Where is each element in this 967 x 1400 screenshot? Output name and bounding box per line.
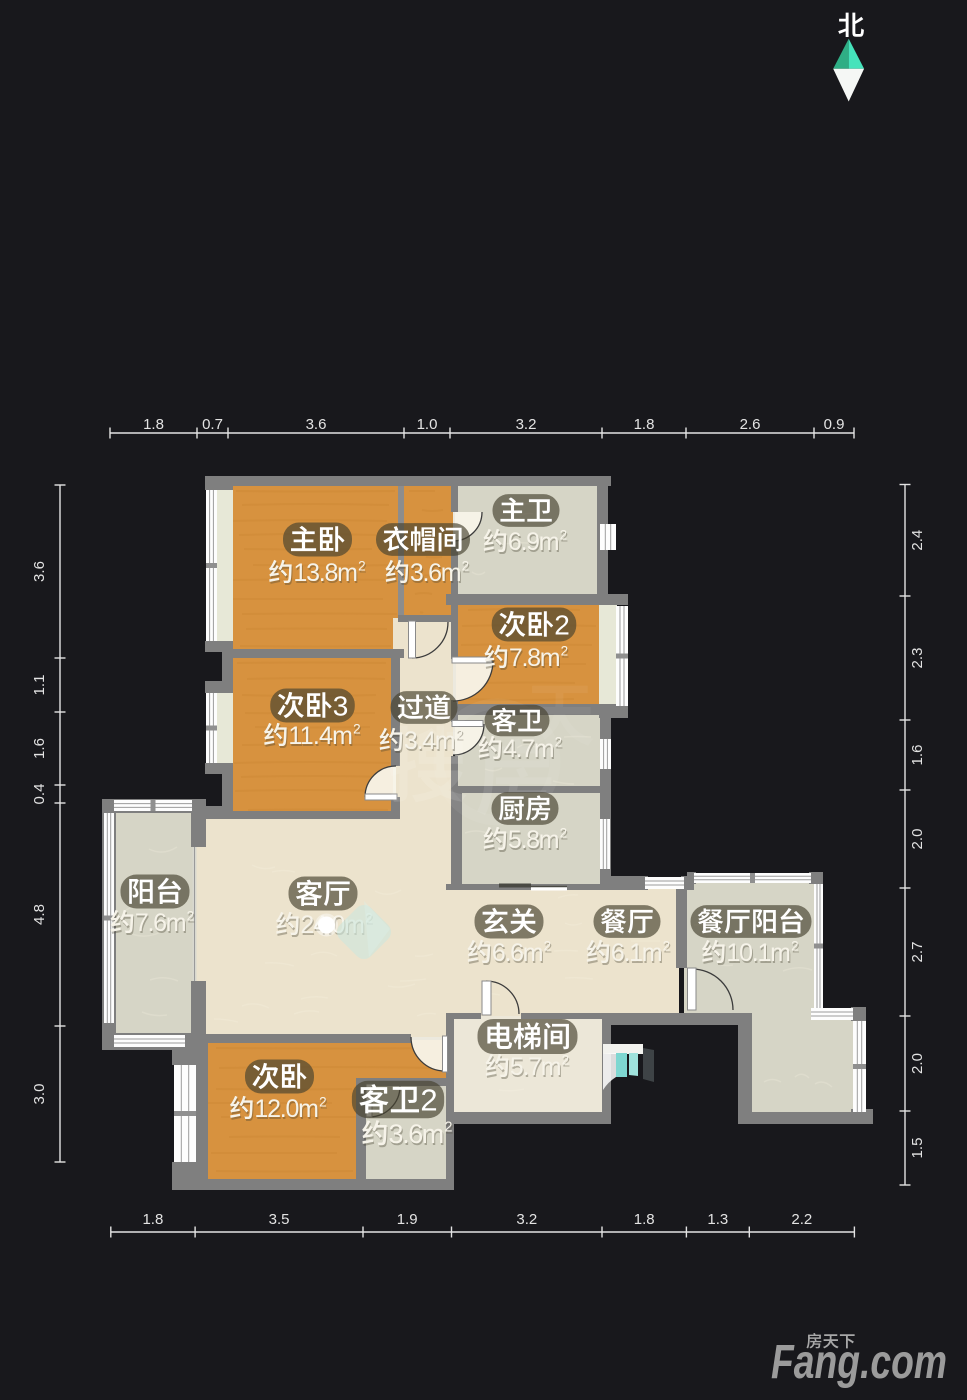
svg-text:4.7m: 4.7m: [503, 735, 555, 763]
svg-text:3: 3: [333, 691, 349, 722]
svg-text:2: 2: [562, 1053, 570, 1068]
svg-text:2.6: 2.6: [740, 416, 761, 433]
svg-text:6.1m: 6.1m: [611, 939, 663, 967]
svg-text:4.8: 4.8: [31, 904, 48, 925]
svg-text:2: 2: [560, 528, 568, 543]
svg-text:2: 2: [444, 1120, 452, 1136]
svg-text:3.0: 3.0: [31, 1084, 48, 1105]
svg-text:1.8: 1.8: [634, 1211, 655, 1228]
svg-text:2: 2: [456, 727, 464, 742]
svg-text:1.8: 1.8: [143, 416, 164, 433]
svg-text:3.6m: 3.6m: [410, 559, 462, 587]
svg-text:2: 2: [319, 1095, 327, 1110]
svg-text:2.7: 2.7: [909, 942, 926, 963]
svg-text:Fang.com: Fang.com: [771, 1336, 947, 1389]
svg-text:2.0: 2.0: [909, 1053, 926, 1074]
svg-text:3.2: 3.2: [516, 1211, 537, 1228]
svg-text:2: 2: [555, 735, 563, 750]
svg-text:3.6m: 3.6m: [389, 1119, 445, 1149]
svg-text:2: 2: [663, 939, 671, 954]
svg-text:2: 2: [561, 644, 569, 659]
svg-text:2.0: 2.0: [909, 829, 926, 850]
svg-text:1.3: 1.3: [707, 1211, 728, 1228]
svg-text:0.4: 0.4: [31, 784, 48, 805]
svg-text:0.9: 0.9: [824, 416, 845, 433]
svg-text:7.8m: 7.8m: [509, 644, 561, 672]
svg-text:1.6: 1.6: [909, 745, 926, 766]
svg-text:2.4: 2.4: [909, 530, 926, 551]
svg-text:2: 2: [462, 559, 470, 574]
svg-text:6.9m: 6.9m: [508, 528, 560, 556]
svg-text:3.6: 3.6: [306, 416, 327, 433]
svg-text:2: 2: [353, 722, 361, 737]
svg-text:0.7: 0.7: [202, 416, 223, 433]
svg-text:2.3: 2.3: [909, 648, 926, 669]
svg-text:1.8: 1.8: [142, 1211, 163, 1228]
svg-text:2: 2: [187, 909, 195, 924]
svg-text:13.8m: 13.8m: [293, 559, 358, 587]
svg-text:7.6m: 7.6m: [135, 909, 187, 937]
svg-text:5.7m: 5.7m: [510, 1053, 562, 1081]
svg-text:3.6: 3.6: [31, 561, 48, 582]
svg-text:1.8: 1.8: [634, 416, 655, 433]
svg-text:11.4m: 11.4m: [288, 722, 353, 750]
svg-text:2: 2: [791, 939, 799, 954]
svg-text:3.5: 3.5: [269, 1211, 290, 1228]
svg-text:2: 2: [544, 939, 552, 954]
svg-text:2: 2: [358, 559, 366, 574]
svg-text:2.2: 2.2: [791, 1211, 812, 1228]
svg-text:1.1: 1.1: [31, 675, 48, 696]
svg-text:10.1m: 10.1m: [726, 939, 791, 967]
svg-text:12.0m: 12.0m: [254, 1095, 319, 1123]
svg-text:5.8m: 5.8m: [508, 826, 560, 854]
svg-text:2: 2: [560, 826, 568, 841]
svg-text:2: 2: [554, 610, 570, 641]
svg-text:1.6: 1.6: [31, 738, 48, 759]
svg-text:1.5: 1.5: [909, 1138, 926, 1159]
svg-text:1.9: 1.9: [397, 1211, 418, 1228]
svg-text:6.6m: 6.6m: [492, 939, 544, 967]
svg-text:3.4m: 3.4m: [404, 727, 456, 755]
svg-text:3.2: 3.2: [516, 416, 537, 433]
svg-text:1.0: 1.0: [417, 416, 438, 433]
svg-text:2: 2: [420, 1083, 437, 1118]
